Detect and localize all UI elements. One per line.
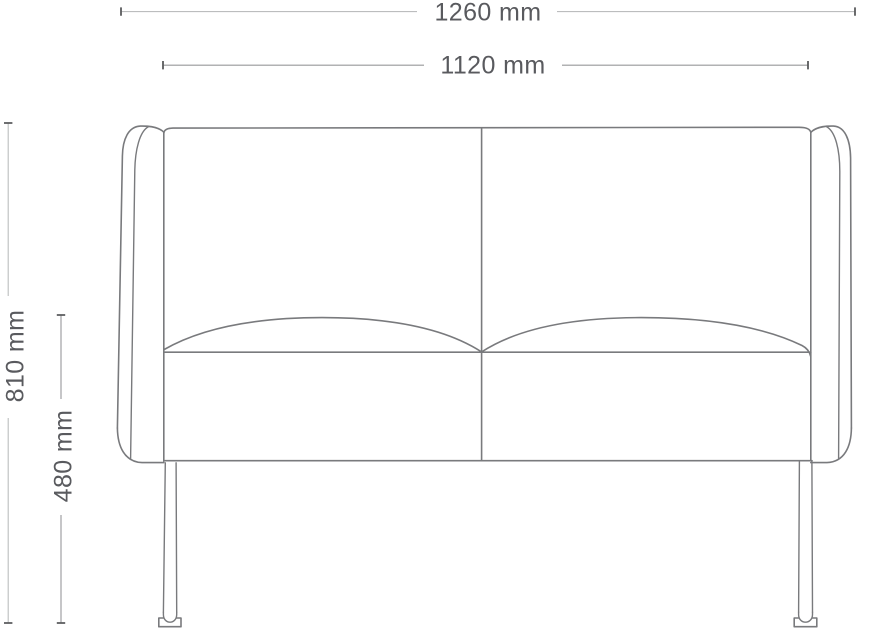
right-leg (794, 462, 817, 627)
dim-overall-width-label: 1260 mm (434, 1, 541, 26)
right-armrest-seam (827, 127, 840, 459)
backrest (164, 127, 811, 461)
seat-cushion-left (164, 318, 481, 352)
left-leg (159, 463, 181, 627)
dim-seat-height-label: 480 mm (52, 410, 77, 503)
left-armrest-seam (131, 127, 149, 459)
dim-inner-width-label: 1120 mm (440, 54, 545, 79)
left-leg-cap (163, 612, 176, 622)
seat-cushion-right (482, 318, 811, 357)
seat-cushions (164, 318, 811, 357)
sofa-drawing (117, 126, 851, 627)
right-leg-cap (799, 612, 813, 622)
dim-overall-height-label: 810 mm (4, 310, 29, 403)
seat-base (164, 352, 812, 461)
right-armrest (811, 126, 852, 463)
sofa-dimension-diagram: 1260 mm 1120 mm 810 mm 480 mm (0, 0, 874, 631)
left-armrest (117, 126, 163, 463)
diagram-canvas (0, 0, 874, 631)
